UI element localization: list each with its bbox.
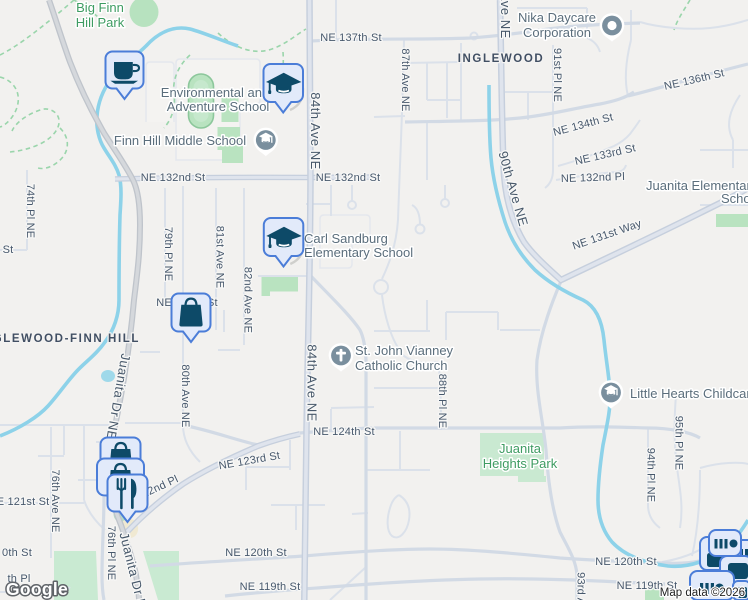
svg-text:NE 124th St: NE 124th St: [313, 426, 375, 438]
svg-text:Google: Google: [6, 579, 68, 599]
svg-text:NE 119th St: NE 119th St: [240, 581, 301, 593]
svg-text:Catholic Church: Catholic Church: [355, 358, 448, 373]
svg-text:82nd Ave NE: 82nd Ave NE: [242, 267, 254, 333]
svg-text:88th Pl NE: 88th Pl NE: [436, 374, 448, 429]
svg-text:NE 132nd St: NE 132nd St: [141, 172, 206, 184]
svg-text:93rd Ave NE: 93rd Ave NE: [575, 572, 587, 600]
svg-text:91st Pl NE: 91st Pl NE: [551, 48, 563, 102]
svg-text:Environmental and: Environmental and: [161, 85, 269, 100]
svg-text:Juanita: Juanita: [499, 441, 542, 456]
svg-text:76th Pl NE: 76th Pl NE: [105, 526, 117, 581]
svg-text:87th Ave NE: 87th Ave NE: [399, 48, 411, 111]
svg-text:Big Finn: Big Finn: [76, 0, 124, 15]
svg-text:84th Ave NE: 84th Ave NE: [305, 344, 320, 422]
svg-text:Corporation: Corporation: [523, 25, 591, 40]
svg-text:St. John Vianney: St. John Vianney: [355, 343, 454, 358]
svg-text:Elementary School: Elementary School: [304, 245, 413, 260]
svg-text:Finn Hill Middle School: Finn Hill Middle School: [114, 133, 246, 148]
svg-text:NE 137th St: NE 137th St: [320, 32, 382, 44]
svg-text:95th Pl NE: 95th Pl NE: [673, 416, 685, 471]
svg-text:Little Hearts Childcare: Little Hearts Childcare: [630, 386, 748, 401]
svg-text:Adventure School: Adventure School: [167, 99, 270, 114]
svg-text:NE 132nd St: NE 132nd St: [316, 172, 381, 184]
svg-text:St: St: [3, 244, 14, 256]
svg-text:Heights Park: Heights Park: [483, 456, 558, 471]
svg-text:81st Ave NE: 81st Ave NE: [214, 226, 226, 289]
svg-text:INGLEWOOD-FINN HILL: INGLEWOOD-FINN HILL: [0, 333, 140, 345]
svg-text:Carl Sandburg: Carl Sandburg: [304, 231, 388, 246]
svg-text:84th Ave NE: 84th Ave NE: [308, 92, 323, 170]
svg-text:NE 120th St: NE 120th St: [595, 556, 657, 568]
svg-text:74th Pl NE: 74th Pl NE: [24, 184, 36, 239]
svg-text:94th Pl NE: 94th Pl NE: [645, 448, 657, 503]
svg-text:NE 132nd Pl: NE 132nd Pl: [561, 171, 625, 185]
svg-text:Nika Daycare: Nika Daycare: [518, 10, 596, 25]
svg-text:INGLEWOOD: INGLEWOOD: [458, 53, 545, 65]
svg-text:90th Ave NE: 90th Ave NE: [498, 0, 513, 39]
svg-text:Hill Park: Hill Park: [76, 15, 125, 30]
svg-text:80th Ave NE: 80th Ave NE: [179, 364, 191, 427]
svg-text:79th Pl NE: 79th Pl NE: [162, 227, 174, 282]
svg-text:Map data ©2026: Map data ©2026: [660, 587, 745, 599]
svg-text:NE 120th St: NE 120th St: [225, 547, 287, 559]
svg-text:School: School: [721, 191, 748, 206]
svg-text:NE 121st St: NE 121st St: [0, 496, 49, 508]
svg-text:0th St: 0th St: [2, 547, 32, 559]
svg-text:76th Ave NE: 76th Ave NE: [49, 469, 61, 532]
